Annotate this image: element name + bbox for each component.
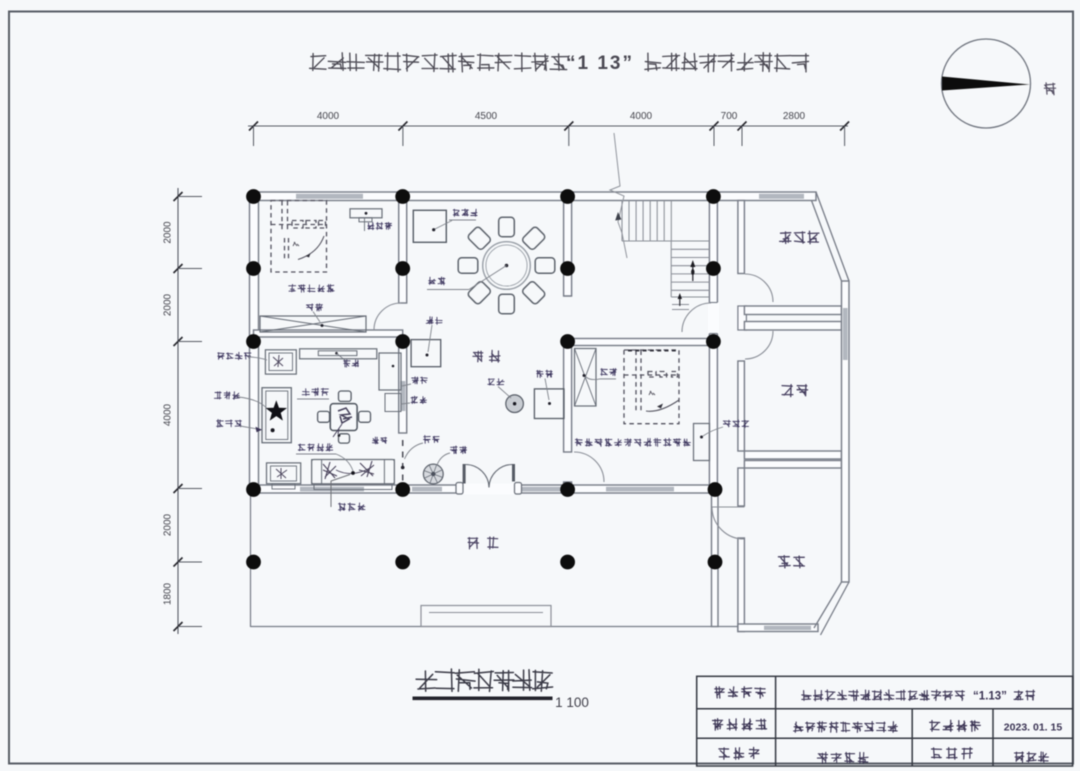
svg-text:“1.13”: “1.13”	[973, 691, 1007, 703]
svg-text:1 100: 1 100	[555, 695, 589, 710]
svg-text:700: 700	[721, 111, 738, 122]
svg-text:4500: 4500	[475, 111, 498, 122]
svg-text:2000: 2000	[163, 513, 174, 536]
svg-text:2800: 2800	[783, 111, 806, 122]
svg-text:4000: 4000	[163, 403, 174, 426]
svg-text:2000: 2000	[163, 293, 174, 316]
svg-text:“1 13”: “1 13”	[566, 53, 634, 74]
svg-text:1800: 1800	[163, 582, 174, 605]
svg-text:2023. 01. 15: 2023. 01. 15	[1004, 722, 1063, 734]
svg-text:2000: 2000	[163, 221, 174, 244]
svg-text:4000: 4000	[317, 111, 340, 122]
svg-text:4000: 4000	[630, 111, 653, 122]
